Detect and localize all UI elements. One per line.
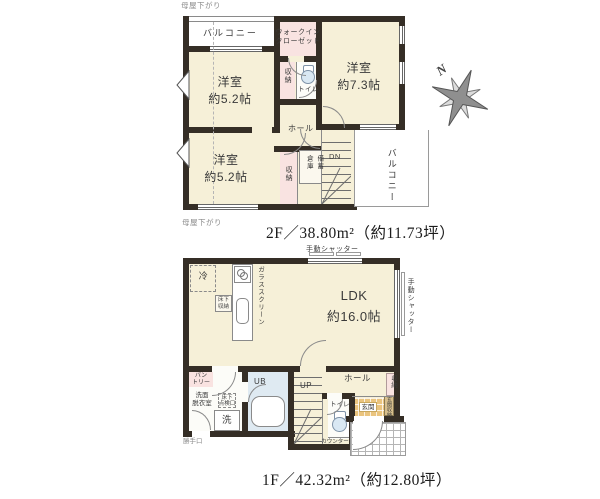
- closet-north-label: 収納: [283, 68, 292, 84]
- balcony-north-label: バルコニー: [203, 28, 258, 40]
- hall-closet-label: 収納: [388, 375, 396, 388]
- bedroom-nw-label: 洋室 約5.2帖: [200, 74, 260, 109]
- entrance-label-box: 玄関: [359, 402, 377, 412]
- window: [198, 204, 258, 210]
- toilet2-label: トイレ: [298, 86, 319, 94]
- window: [308, 258, 362, 264]
- door-opening: [192, 431, 210, 437]
- compass-icon: [425, 63, 495, 133]
- wall: [183, 258, 400, 264]
- closet-south-label: 収納: [284, 166, 293, 182]
- window: [210, 46, 262, 52]
- shutter-box: [401, 272, 405, 336]
- toilet-icon: [332, 411, 346, 431]
- walk-in-closet-label: ウォークイン クローゼット: [274, 28, 322, 47]
- unit-bath-label: UB: [254, 377, 266, 387]
- attic-note-bottom: 母屋下がり: [182, 218, 222, 228]
- balcony-east-label: バルコニー: [385, 148, 397, 203]
- door-opening: [300, 366, 326, 372]
- washer-label: 洗: [222, 415, 232, 427]
- wall: [183, 258, 189, 437]
- window: [399, 26, 405, 44]
- balcony-north-rail: [186, 16, 275, 22]
- bay-window-icon: [176, 70, 190, 100]
- shutter-right-label: 手動シャッター: [406, 278, 415, 334]
- door-opening: [242, 382, 248, 402]
- stove-icon: [234, 266, 251, 283]
- back-door-label: 勝手口: [183, 438, 203, 446]
- hall1-label: ホール: [344, 373, 371, 384]
- door-opening: [252, 127, 272, 133]
- stairs-up-label: UP: [300, 381, 312, 391]
- partition-line: [297, 152, 298, 204]
- hall2-label: ホール: [288, 124, 314, 134]
- floor1-area-title: 1F／42.32m²（約12.80坪）: [262, 468, 452, 490]
- window: [399, 62, 405, 84]
- refrigerator-label: 冷: [196, 271, 208, 281]
- washroom-label: 洗面 脱衣室: [189, 392, 215, 408]
- bedroom-sw-label: 洋室 約5.2帖: [196, 152, 256, 187]
- floor2-area-title: 2F／38.80m²（約11.73坪）: [266, 221, 455, 243]
- bay-window-icon: [176, 138, 190, 168]
- shutter-top-label: 手動シャッター: [306, 245, 359, 254]
- stock-storage-label: 備蓄 倉庫: [303, 155, 324, 170]
- window: [394, 270, 400, 338]
- entrance-label: 玄関: [360, 404, 376, 412]
- toilet-counter-label: カウンター: [321, 439, 349, 446]
- sink-icon: [236, 298, 249, 324]
- toilet1-label: トイレ: [330, 401, 350, 409]
- stairs-down-label: DN: [329, 152, 341, 162]
- underfloor-storage-label: 床下 収納: [215, 297, 232, 310]
- ldk-label: LDK 約16.0帖: [314, 286, 394, 328]
- toilet-counter-line: [328, 437, 349, 438]
- entrance-storage-label: 玄関収納: [386, 397, 391, 417]
- attic-note-top: 母屋下がり: [181, 1, 221, 11]
- bedroom-ne-label: 洋室 約7.3帖: [330, 60, 388, 95]
- underfloor-hatch-label: 床下 点検口: [218, 395, 236, 408]
- glass-screen-label: ガラススクリーン: [255, 266, 263, 326]
- floorplan-page: 母屋下がり バルコニー ウォークイン クローゼット 洋室 約7.3帖 洋室 約5…: [0, 0, 600, 499]
- pantry-label: パン トリー: [189, 373, 213, 387]
- wall: [274, 16, 405, 22]
- partition-line: [322, 399, 323, 444]
- wall: [274, 99, 322, 105]
